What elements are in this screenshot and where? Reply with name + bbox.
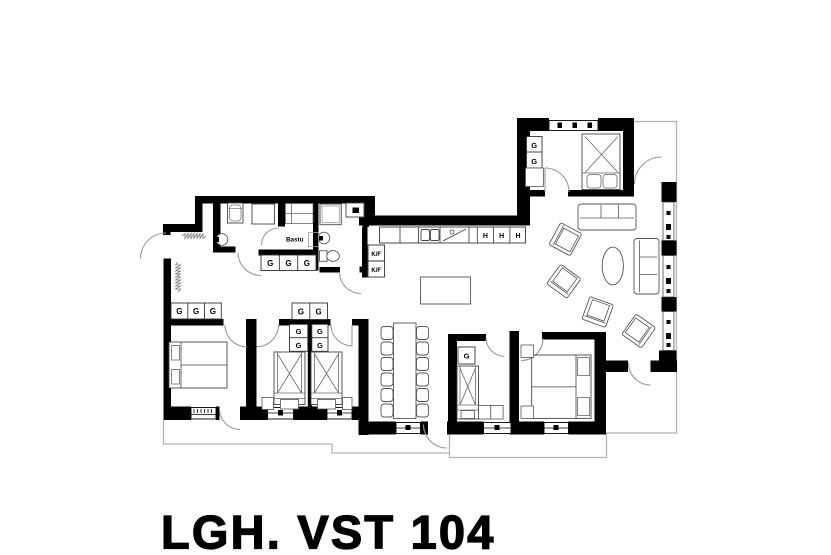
svg-text:G: G: [285, 259, 291, 268]
svg-text:H: H: [499, 233, 504, 240]
svg-text:G: G: [210, 307, 216, 316]
svg-text:G: G: [304, 259, 310, 268]
svg-text:H: H: [515, 233, 520, 240]
svg-text:G: G: [464, 352, 470, 361]
svg-text:G: G: [531, 141, 537, 150]
svg-text:H: H: [483, 233, 488, 240]
svg-text:G: G: [193, 307, 199, 316]
svg-text:G: G: [317, 341, 323, 350]
svg-text:G: G: [531, 157, 537, 166]
svg-text:K/F: K/F: [371, 268, 381, 274]
svg-text:G: G: [296, 327, 302, 336]
svg-text:G: G: [298, 308, 304, 317]
svg-text:G: G: [317, 327, 323, 336]
svg-text:Bastu: Bastu: [286, 237, 304, 244]
svg-text:K/F: K/F: [371, 252, 381, 258]
svg-text:G: G: [176, 307, 182, 316]
svg-text:LGH. VST 104: LGH. VST 104: [161, 506, 496, 555]
svg-text:G: G: [267, 259, 273, 268]
svg-text:G: G: [296, 341, 302, 350]
svg-text:G: G: [315, 308, 321, 317]
